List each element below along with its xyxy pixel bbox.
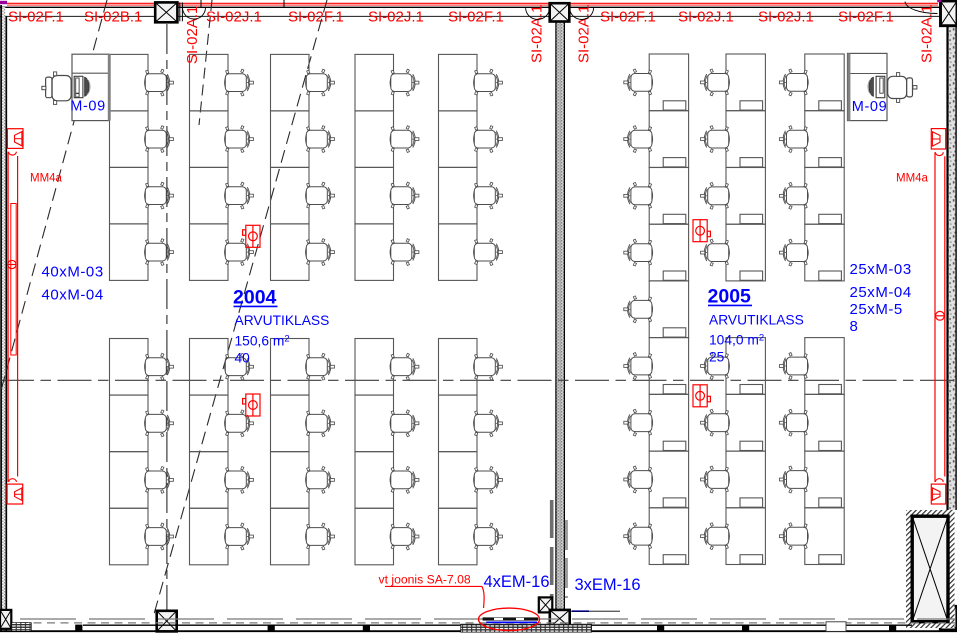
svg-text:SI-02A.1: SI-02A.1 [184, 6, 201, 64]
svg-text:40xM-04: 40xM-04 [42, 287, 104, 304]
svg-text:150,6 m2: 150,6 m2 [235, 334, 290, 349]
svg-text:SI-02F.1: SI-02F.1 [8, 8, 64, 25]
svg-text:SI-02J.1: SI-02J.1 [368, 8, 424, 25]
svg-text:MM4a: MM4a [896, 173, 929, 185]
svg-text:M-09: M-09 [852, 99, 887, 115]
svg-text:8: 8 [850, 318, 858, 335]
svg-text:SI-02F.1: SI-02F.1 [448, 8, 504, 25]
svg-text:ARVUTIKLASS: ARVUTIKLASS [709, 313, 804, 328]
svg-text:SI-02A.1: SI-02A.1 [576, 5, 593, 63]
svg-text:SI-02F.1: SI-02F.1 [838, 8, 894, 25]
svg-text:25: 25 [709, 350, 725, 365]
svg-text:2004: 2004 [233, 287, 277, 309]
svg-text:M-09: M-09 [70, 99, 105, 115]
svg-text:SI-02J.1: SI-02J.1 [678, 8, 734, 25]
svg-text:25xM-04: 25xM-04 [850, 284, 912, 301]
svg-text:2005: 2005 [708, 286, 752, 308]
svg-text:4xEM-16: 4xEM-16 [484, 573, 550, 591]
svg-text:SI-02B.1: SI-02B.1 [84, 8, 142, 25]
svg-text:SI-02F.1: SI-02F.1 [600, 8, 656, 25]
svg-text:SI-02F.1: SI-02F.1 [288, 8, 344, 25]
svg-text:3xEM-16: 3xEM-16 [575, 576, 641, 594]
svg-text:40xM-03: 40xM-03 [42, 264, 104, 281]
svg-text:ARVUTIKLASS: ARVUTIKLASS [235, 313, 330, 328]
svg-text:SI-02J.1: SI-02J.1 [758, 8, 814, 25]
svg-text:40: 40 [235, 351, 251, 366]
svg-text:vt joonis SA-7.08: vt joonis SA-7.08 [379, 573, 471, 587]
svg-text:25xM-5: 25xM-5 [850, 301, 903, 318]
svg-text:104,0 m2: 104,0 m2 [709, 333, 764, 348]
svg-text:MM4a: MM4a [30, 173, 63, 185]
svg-text:SI-02A.1: SI-02A.1 [529, 5, 546, 63]
svg-text:SI-02J.1: SI-02J.1 [206, 8, 262, 25]
svg-text:25xM-03: 25xM-03 [850, 261, 912, 278]
